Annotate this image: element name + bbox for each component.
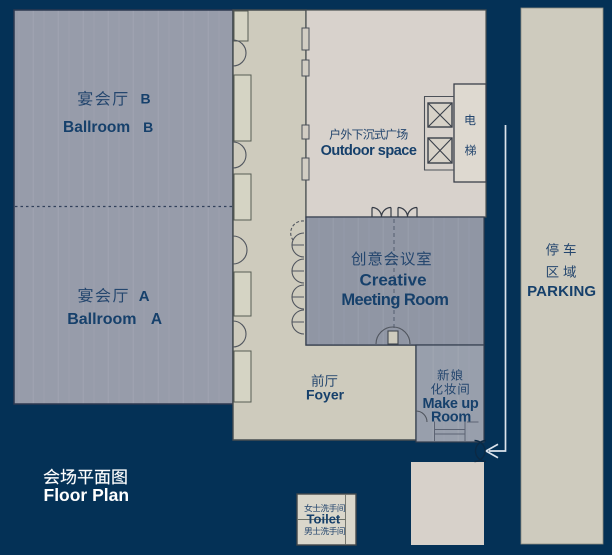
svg-text:Ballroom: Ballroom — [67, 311, 136, 328]
svg-text:Toilet: Toilet — [307, 511, 341, 526]
svg-text:Room: Room — [431, 410, 471, 426]
svg-text:A: A — [151, 311, 162, 328]
svg-text:Outdoor space: Outdoor space — [321, 143, 417, 159]
svg-text:PARKING: PARKING — [527, 283, 596, 300]
svg-text:Foyer: Foyer — [306, 387, 345, 403]
svg-text:Meeting Room: Meeting Room — [341, 291, 448, 309]
svg-text:B: B — [143, 119, 153, 135]
svg-text:B: B — [141, 91, 151, 107]
svg-text:Floor Plan: Floor Plan — [44, 485, 130, 505]
svg-text:Ballroom: Ballroom — [63, 119, 130, 136]
svg-text:A: A — [139, 288, 150, 305]
svg-text:Creative: Creative — [359, 271, 426, 290]
